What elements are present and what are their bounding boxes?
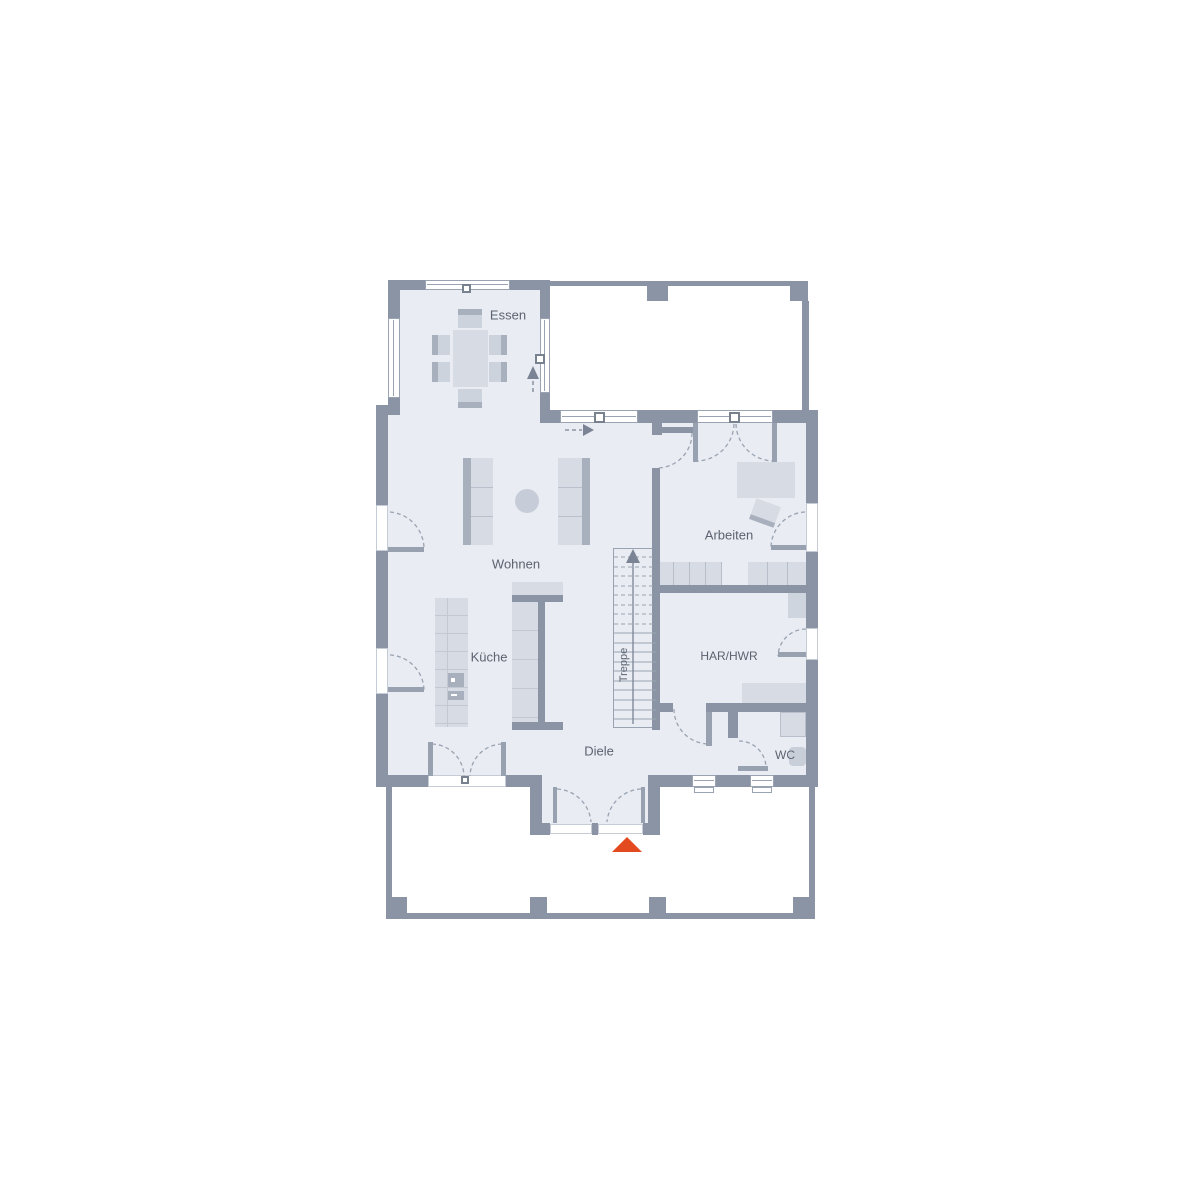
entrance-door-opening	[598, 824, 643, 834]
wall-segment	[773, 410, 818, 423]
door-leaf	[428, 742, 433, 776]
island-wall	[512, 595, 563, 602]
wall-segment	[388, 290, 400, 318]
shelf	[658, 562, 722, 586]
shelf	[748, 562, 806, 586]
dining-chair	[458, 309, 482, 328]
room-label-treppe: Treppe	[618, 648, 630, 682]
dining-chair	[432, 362, 450, 382]
sofa-left	[463, 458, 493, 545]
room-label-wohnen: Wohnen	[492, 557, 540, 572]
room-label-kueche: Küche	[471, 650, 508, 665]
wall-segment	[806, 423, 818, 505]
door-leaf	[771, 545, 806, 550]
wall-segment	[643, 823, 660, 835]
door-opening	[806, 503, 818, 552]
window	[388, 318, 400, 398]
dining-chair	[432, 335, 450, 355]
door-leaf	[778, 652, 806, 657]
window	[750, 775, 774, 787]
room-label-essen: Essen	[490, 308, 526, 323]
terrace-post	[530, 897, 547, 913]
island-cabinets	[512, 602, 538, 722]
wall-segment	[540, 286, 550, 318]
washbasin	[780, 712, 806, 737]
wall-segment	[543, 410, 560, 423]
wall-segment	[376, 694, 388, 787]
terrace-edge	[386, 913, 815, 919]
dining-chair	[458, 389, 482, 408]
door-opening	[806, 628, 818, 660]
wall-segment	[388, 280, 425, 290]
sofa-right	[558, 458, 590, 545]
door-opening	[376, 648, 388, 694]
wall-segment	[706, 703, 806, 712]
wall-segment	[376, 775, 428, 787]
island-counter	[512, 582, 563, 595]
utility-niche	[788, 593, 806, 618]
door-leaf	[553, 787, 557, 823]
wall-segment	[806, 552, 818, 628]
staircase	[613, 548, 657, 728]
room-label-arbeiten: Arbeiten	[705, 528, 753, 543]
window-sill	[752, 787, 772, 793]
terrace-post	[649, 897, 666, 913]
wall-segment	[652, 423, 662, 435]
room-label-wc: WC	[775, 748, 795, 762]
wall-segment	[388, 398, 400, 405]
wall-segment	[530, 823, 550, 835]
floor-plan: Essen Wohnen Küche Arbeiten HAR/HWR WC D…	[0, 0, 1200, 1200]
oven	[448, 673, 464, 687]
terrace-edge	[802, 301, 809, 410]
room-label-har-hwr: HAR/HWR	[700, 649, 757, 663]
wall-segment	[652, 468, 660, 730]
door-leaf	[772, 423, 777, 462]
kitchen-appliance	[448, 691, 464, 700]
kitchen-cabinets	[435, 598, 468, 727]
window-marker	[729, 412, 740, 423]
dining-table	[453, 330, 488, 387]
terrace-post	[790, 281, 808, 301]
wall-segment	[728, 712, 738, 738]
wall-segment	[806, 660, 818, 787]
wall-segment	[662, 427, 693, 433]
coffee-table	[515, 489, 539, 513]
door-leaf	[501, 742, 506, 776]
desk	[737, 462, 795, 498]
door-leaf	[641, 787, 645, 823]
wall-segment	[653, 585, 806, 593]
island-wall	[538, 602, 545, 722]
door-leaf	[388, 687, 424, 692]
door-leaf	[706, 712, 712, 746]
window	[692, 775, 716, 787]
wall-segment	[774, 775, 818, 787]
entrance-marker-icon	[612, 837, 642, 852]
window-marker	[594, 412, 605, 423]
window-marker	[535, 354, 545, 364]
window-marker	[461, 776, 469, 784]
dining-chair	[489, 362, 507, 382]
island-wall	[512, 722, 563, 730]
terrace-post	[793, 897, 810, 913]
wall-segment	[376, 551, 388, 650]
door-leaf	[388, 547, 424, 552]
utility-counter	[742, 683, 806, 703]
wall-segment	[638, 410, 697, 423]
wall-segment	[716, 775, 750, 787]
floor-area-west	[388, 415, 400, 777]
room-label-diele: Diele	[584, 744, 614, 759]
window-sill	[694, 787, 714, 793]
terrace-post	[647, 281, 668, 301]
wall-segment	[653, 703, 673, 712]
window-marker	[462, 284, 471, 293]
terrace-edge	[545, 281, 808, 286]
door-leaf	[693, 423, 698, 462]
wall-segment	[376, 405, 400, 415]
door-opening	[376, 505, 388, 551]
floor-area-vestibule	[542, 777, 648, 824]
door-leaf	[738, 766, 768, 771]
wall-segment	[660, 775, 692, 787]
entrance-door-opening	[550, 824, 592, 834]
dining-chair	[489, 335, 507, 355]
wall-segment	[376, 415, 388, 507]
terrace-post	[390, 897, 407, 913]
